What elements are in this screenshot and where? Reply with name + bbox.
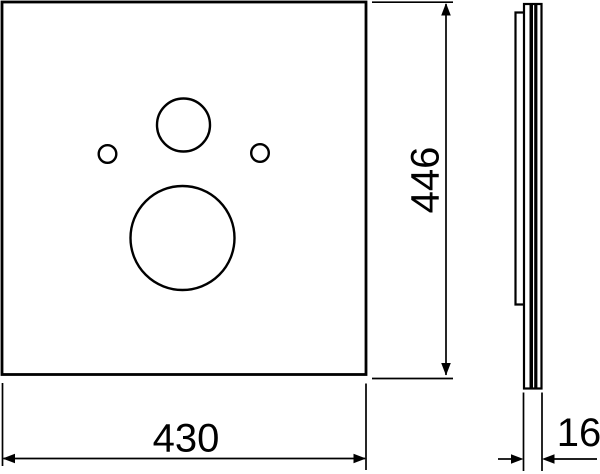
width-dim-arrow-right-icon — [354, 454, 367, 464]
side-view-layer-stripe-right — [534, 5, 537, 388]
thickness-dimension: 16 — [498, 393, 600, 472]
side-view-layer-stripe-left — [530, 5, 534, 388]
large-circle-cutout — [131, 186, 235, 290]
width-dimension-label: 430 — [153, 417, 220, 461]
height-dimension-label: 446 — [404, 147, 448, 214]
width-dimension: 430 — [3, 383, 367, 470]
side-view-bracket-outline — [516, 13, 525, 305]
thickness-dimension-label: 16 — [557, 411, 600, 455]
front-panel-outline — [2, 2, 366, 375]
thickness-dim-arrow-right-icon — [511, 454, 524, 464]
height-dim-arrow-down-icon — [441, 363, 451, 376]
side-view — [516, 4, 542, 389]
technical-drawing-canvas: 446 430 16 — [0, 0, 600, 474]
small-right-circle-cutout — [251, 144, 269, 162]
height-dimension: 446 — [372, 2, 453, 378]
width-dim-arrow-left-icon — [3, 454, 16, 464]
medium-circle-cutout — [157, 99, 210, 152]
front-view — [2, 2, 366, 375]
thickness-dim-arrow-left-icon — [542, 454, 555, 464]
height-dim-arrow-up-icon — [441, 3, 451, 16]
small-left-circle-cutout — [99, 145, 117, 163]
panel-dimension-drawing: 446 430 16 — [0, 0, 600, 474]
